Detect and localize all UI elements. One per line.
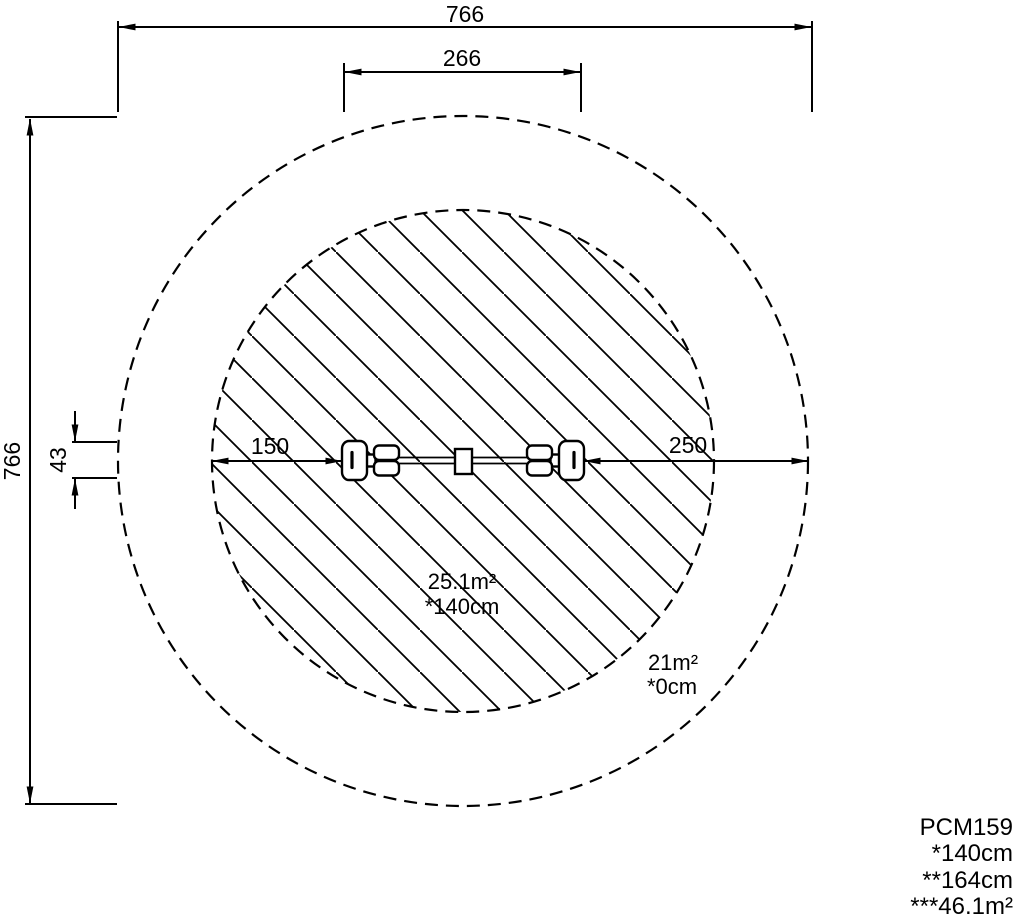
dimension-label-clearance-right: 250 [669,432,707,458]
dimension-label-overall-height: 766 [0,442,25,480]
technical-drawing-page: 766 266 766 43 150 [0,0,1024,923]
outer-zone-label: 21m² *0cm [647,650,698,699]
legend-total-area: ***46.1m² [910,893,1013,920]
legend-equipment-height: **164cm [922,867,1013,894]
seesaw-right-handle [527,461,552,476]
dimension-equipment-length: 266 [344,45,581,112]
dimension-equipment-width: 43 [45,411,117,509]
inner-zone-height-value: *140cm [425,594,500,619]
inner-zone-area-value: 25.1m² [428,569,496,594]
seesaw-right-handle [527,446,552,461]
seesaw-center-pivot [455,449,472,474]
seesaw-left-seat [342,441,367,480]
dimension-label-clearance-left: 150 [251,433,289,459]
dimension-label-equipment-width: 43 [45,447,71,473]
legend-block: PCM159 *140cm **164cm ***46.1m² [910,814,1013,920]
outer-zone-height-value: *0cm [647,674,697,699]
dimension-label-overall-width: 766 [446,1,484,27]
dimension-label-equipment-length: 266 [443,45,481,71]
seesaw-left-handle [374,446,399,461]
legend-fall-height: *140cm [932,840,1013,867]
seesaw-left-handle [374,461,399,476]
safety-zone-plan-drawing: 766 266 766 43 150 [0,0,1024,923]
inner-zone-label: 25.1m² *140cm [425,569,500,619]
seesaw-right-seat [559,441,584,480]
product-code: PCM159 [920,814,1013,841]
outer-zone-area-value: 21m² [648,650,698,675]
